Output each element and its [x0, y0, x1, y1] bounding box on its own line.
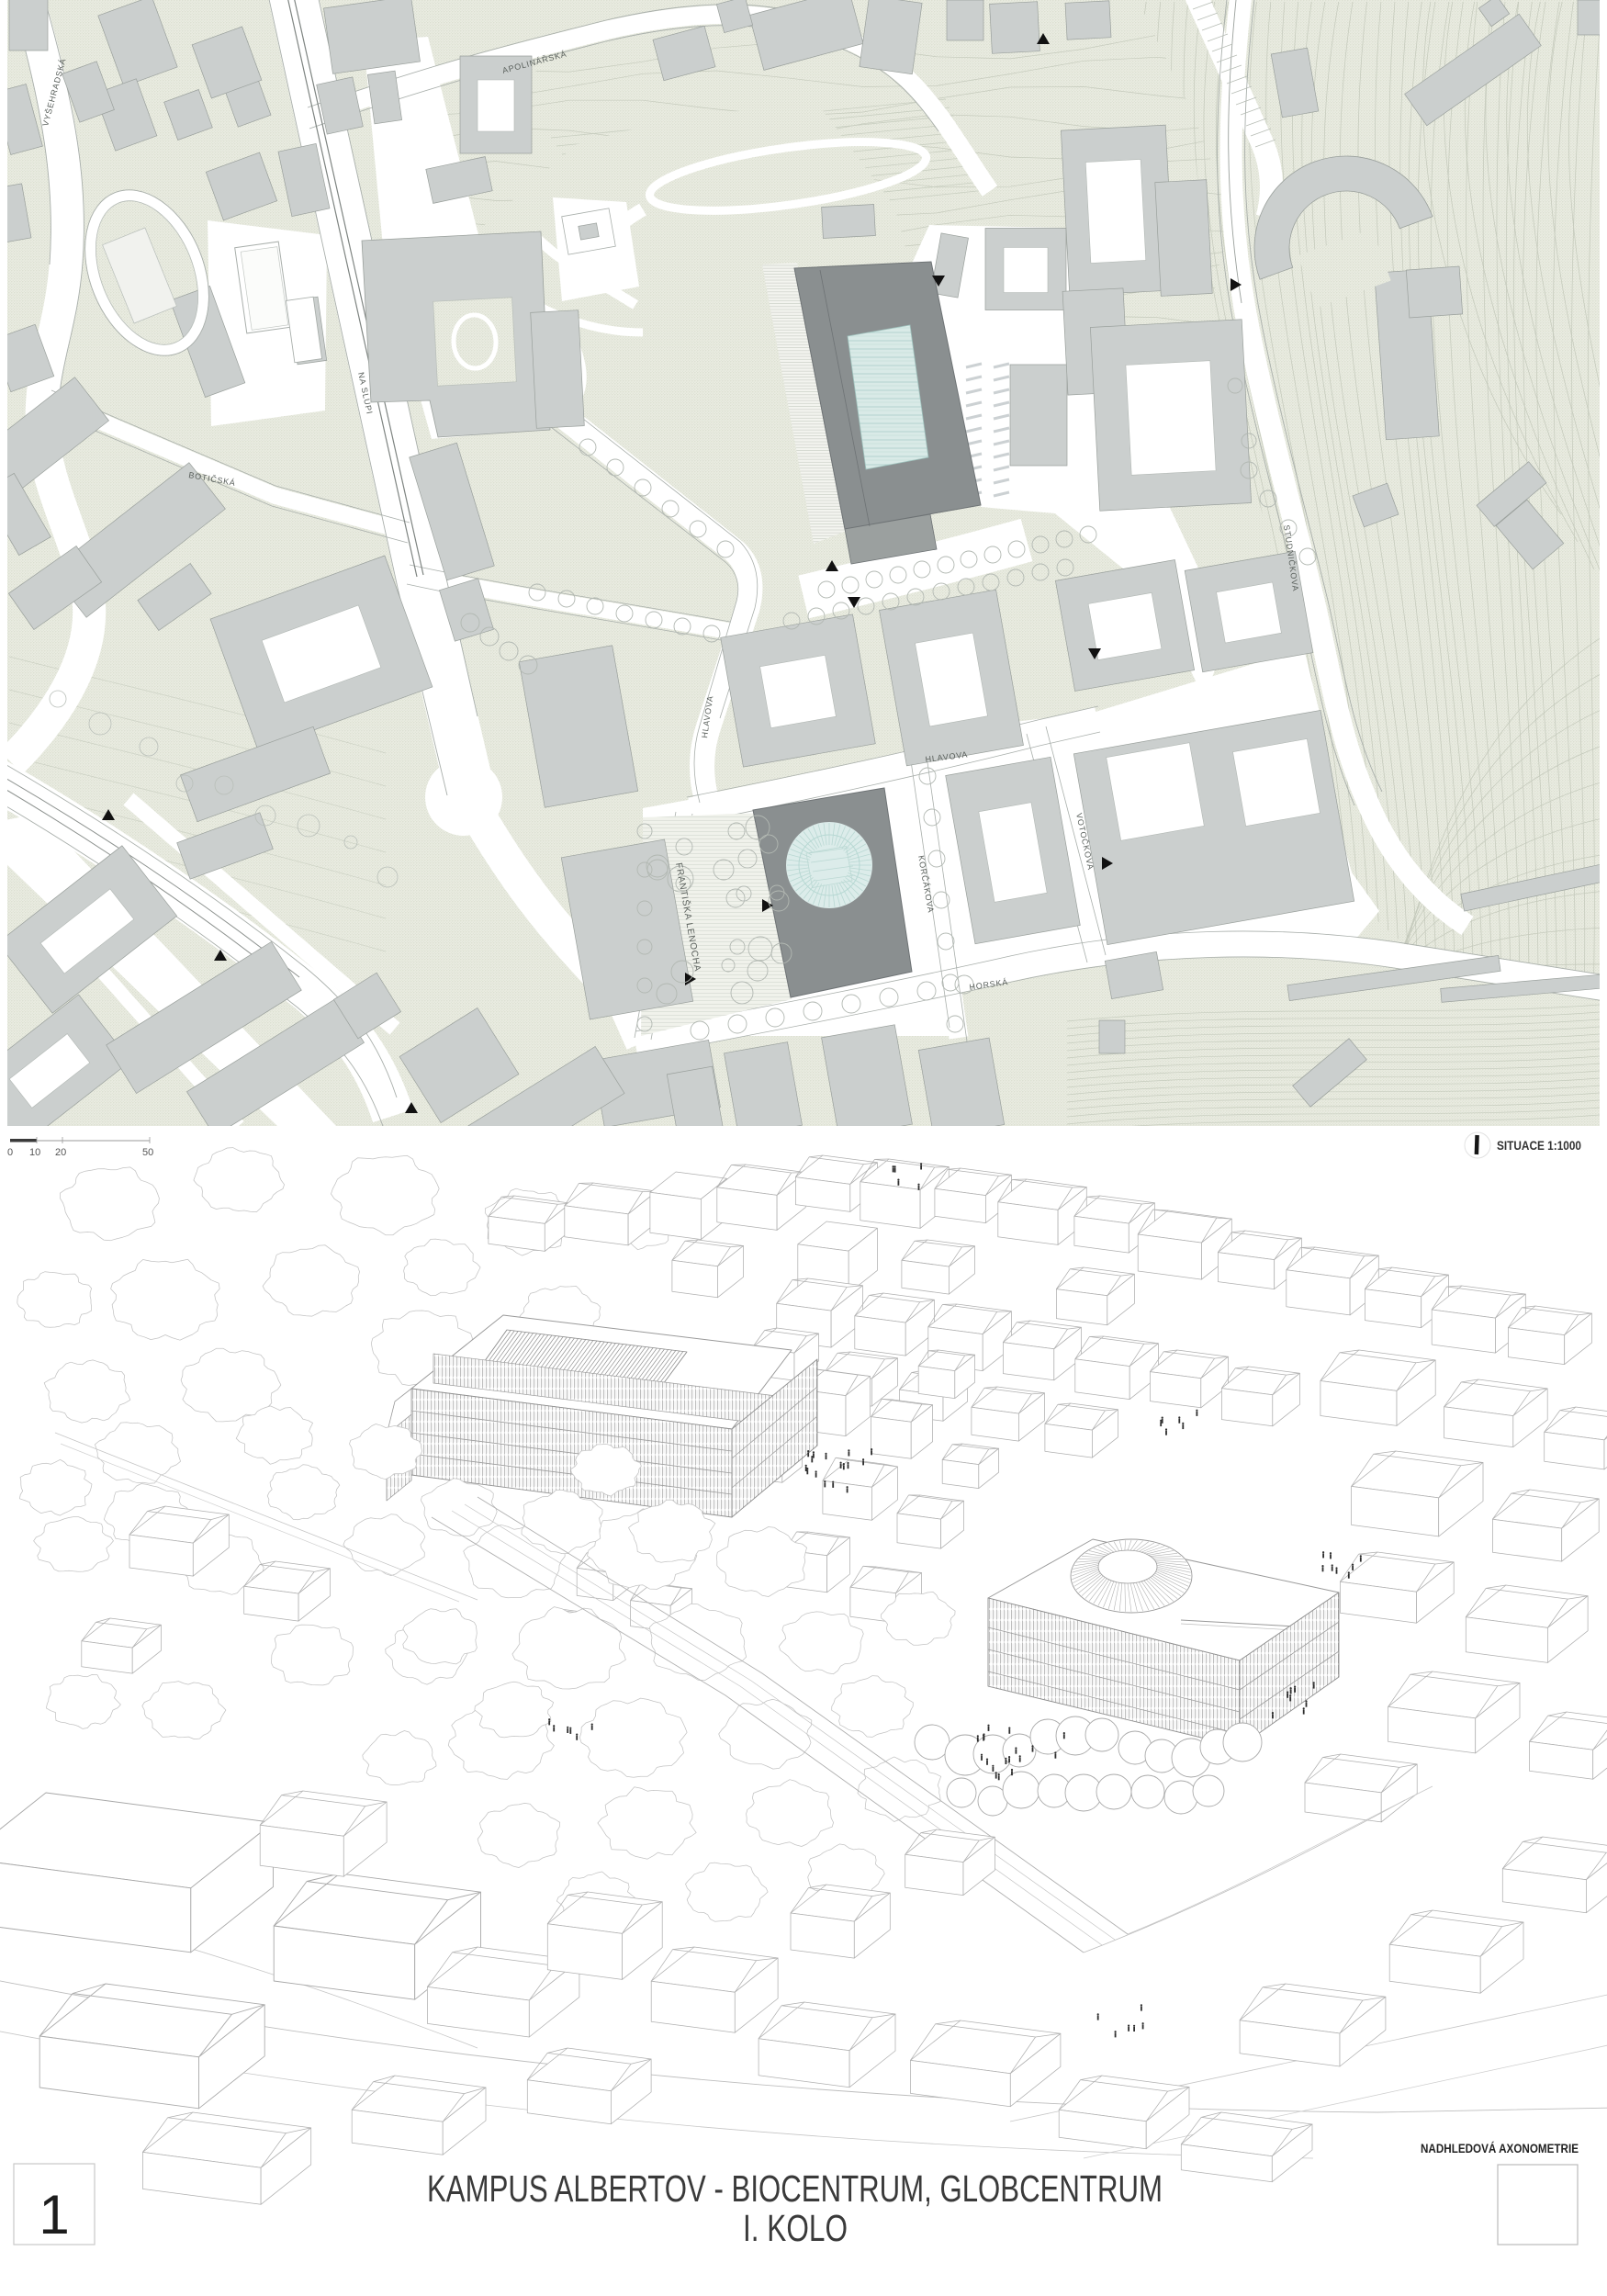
svg-text:SITUACE 1:1000: SITUACE 1:1000: [1497, 1139, 1581, 1153]
svg-text:I. KOLO: I. KOLO: [743, 2207, 848, 2249]
svg-text:50: 50: [142, 1147, 153, 1158]
svg-text:0: 0: [7, 1147, 13, 1158]
svg-text:1: 1: [39, 2184, 69, 2245]
svg-text:20: 20: [55, 1147, 66, 1158]
svg-text:10: 10: [29, 1147, 40, 1158]
svg-text:NADHLEDOVÁ AXONOMETRIE: NADHLEDOVÁ AXONOMETRIE: [1421, 2142, 1579, 2155]
svg-text:KAMPUS ALBERTOV - BIOCENTRUM,: KAMPUS ALBERTOV - BIOCENTRUM, GLOBCENTRU…: [427, 2167, 1163, 2210]
